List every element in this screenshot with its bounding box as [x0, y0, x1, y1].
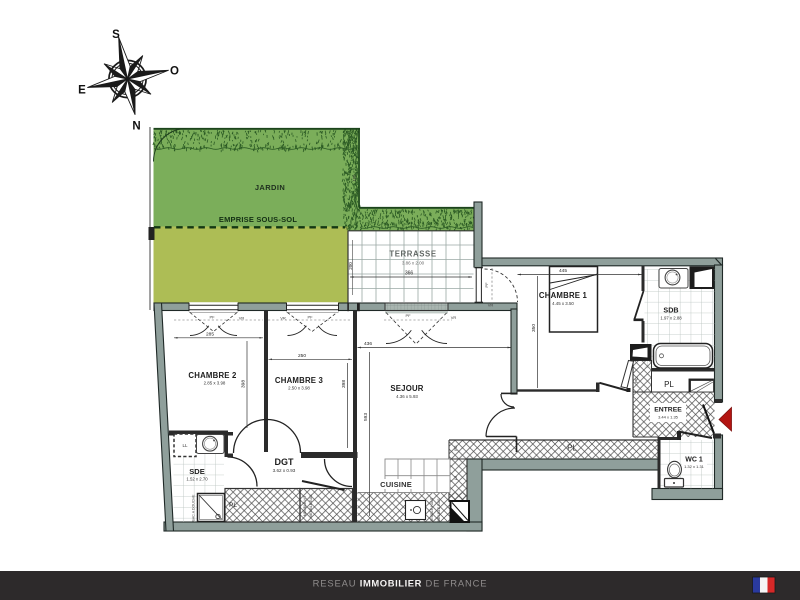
- svg-text:4.36 x 5.93: 4.36 x 5.93: [396, 394, 418, 399]
- svg-text:O: O: [170, 66, 179, 78]
- svg-text:PL: PL: [634, 377, 639, 383]
- svg-text:398: 398: [341, 380, 347, 388]
- svg-text:SDB: SDB: [663, 306, 678, 315]
- svg-text:VR: VR: [280, 316, 286, 321]
- svg-text:200: 200: [348, 262, 353, 270]
- svg-text:PL: PL: [664, 380, 674, 389]
- svg-text:MEUBLE BAS: MEUBLE BAS: [437, 498, 441, 522]
- svg-text:SEJOUR: SEJOUR: [390, 384, 423, 393]
- svg-text:JARDIN: JARDIN: [255, 183, 285, 192]
- svg-text:366: 366: [405, 271, 414, 277]
- svg-text:EMPRISE SOUS-SOL: EMPRISE SOUS-SOL: [219, 215, 297, 224]
- svg-text:1.52 x 2.70: 1.52 x 2.70: [186, 477, 208, 482]
- svg-text:SDE: SDE: [189, 467, 204, 476]
- svg-text:3.86 x 2.00: 3.86 x 2.00: [402, 261, 425, 266]
- svg-text:PF: PF: [405, 313, 411, 318]
- svg-text:4.45 x 3.50: 4.45 x 3.50: [552, 301, 574, 306]
- svg-text:VR: VR: [239, 316, 245, 321]
- svg-text:3.44 x 1.35: 3.44 x 1.35: [658, 415, 679, 420]
- svg-text:CHAMBRE 2: CHAMBRE 2: [188, 371, 237, 380]
- svg-text:PF: PF: [209, 315, 215, 320]
- svg-text:MEUBLE HT: MEUBLE HT: [303, 495, 307, 516]
- svg-text:CHAMBRE 1: CHAMBRE 1: [539, 291, 588, 300]
- svg-text:3.62 x 0.93: 3.62 x 0.93: [273, 468, 296, 473]
- svg-text:PF: PF: [484, 282, 489, 288]
- svg-text:2.50 x 3.98: 2.50 x 3.98: [288, 386, 310, 391]
- svg-text:RESEAU IMMOBILIER DE FRANCE: RESEAU IMMOBILIER DE FRANCE: [313, 578, 488, 589]
- svg-text:436: 436: [364, 341, 372, 347]
- svg-text:MEUBLE BAS: MEUBLE BAS: [309, 494, 313, 518]
- svg-text:593: 593: [363, 413, 369, 421]
- svg-text:1.32 x 1.31: 1.32 x 1.31: [684, 464, 705, 469]
- svg-text:LV: LV: [454, 475, 458, 480]
- svg-text:CHAMBRE 3: CHAMBRE 3: [275, 376, 324, 385]
- svg-text:ENTREE: ENTREE: [654, 407, 682, 414]
- svg-text:285: 285: [206, 332, 214, 338]
- svg-text:350: 350: [531, 324, 537, 332]
- svg-text:445: 445: [559, 268, 567, 274]
- svg-text:DGT: DGT: [275, 457, 295, 467]
- svg-text:WC 1: WC 1: [685, 457, 703, 464]
- svg-text:BAC A DOUCHE: BAC A DOUCHE: [192, 494, 196, 522]
- svg-text:LL: LL: [182, 443, 188, 448]
- svg-text:VR: VR: [451, 315, 457, 320]
- svg-text:S: S: [112, 29, 120, 41]
- svg-text:N: N: [132, 121, 140, 133]
- svg-text:250: 250: [298, 353, 306, 359]
- svg-text:2.85 x 3.98: 2.85 x 3.98: [204, 381, 226, 386]
- svg-text:CUISINE: CUISINE: [380, 480, 412, 489]
- svg-text:1.97 x 2.88: 1.97 x 2.88: [660, 316, 682, 321]
- svg-text:VR: VR: [488, 303, 494, 308]
- svg-text:PF: PF: [307, 315, 313, 320]
- svg-text:PL: PL: [567, 444, 577, 453]
- svg-text:TERRASSE: TERRASSE: [389, 250, 436, 259]
- svg-text:PL: PL: [229, 502, 237, 509]
- svg-text:MEUBLE HAUT: MEUBLE HAUT: [430, 496, 434, 522]
- svg-text:E: E: [78, 85, 86, 97]
- svg-text:180: 180: [352, 174, 357, 181]
- svg-text:FG: FG: [454, 445, 458, 450]
- svg-text:398: 398: [241, 380, 247, 388]
